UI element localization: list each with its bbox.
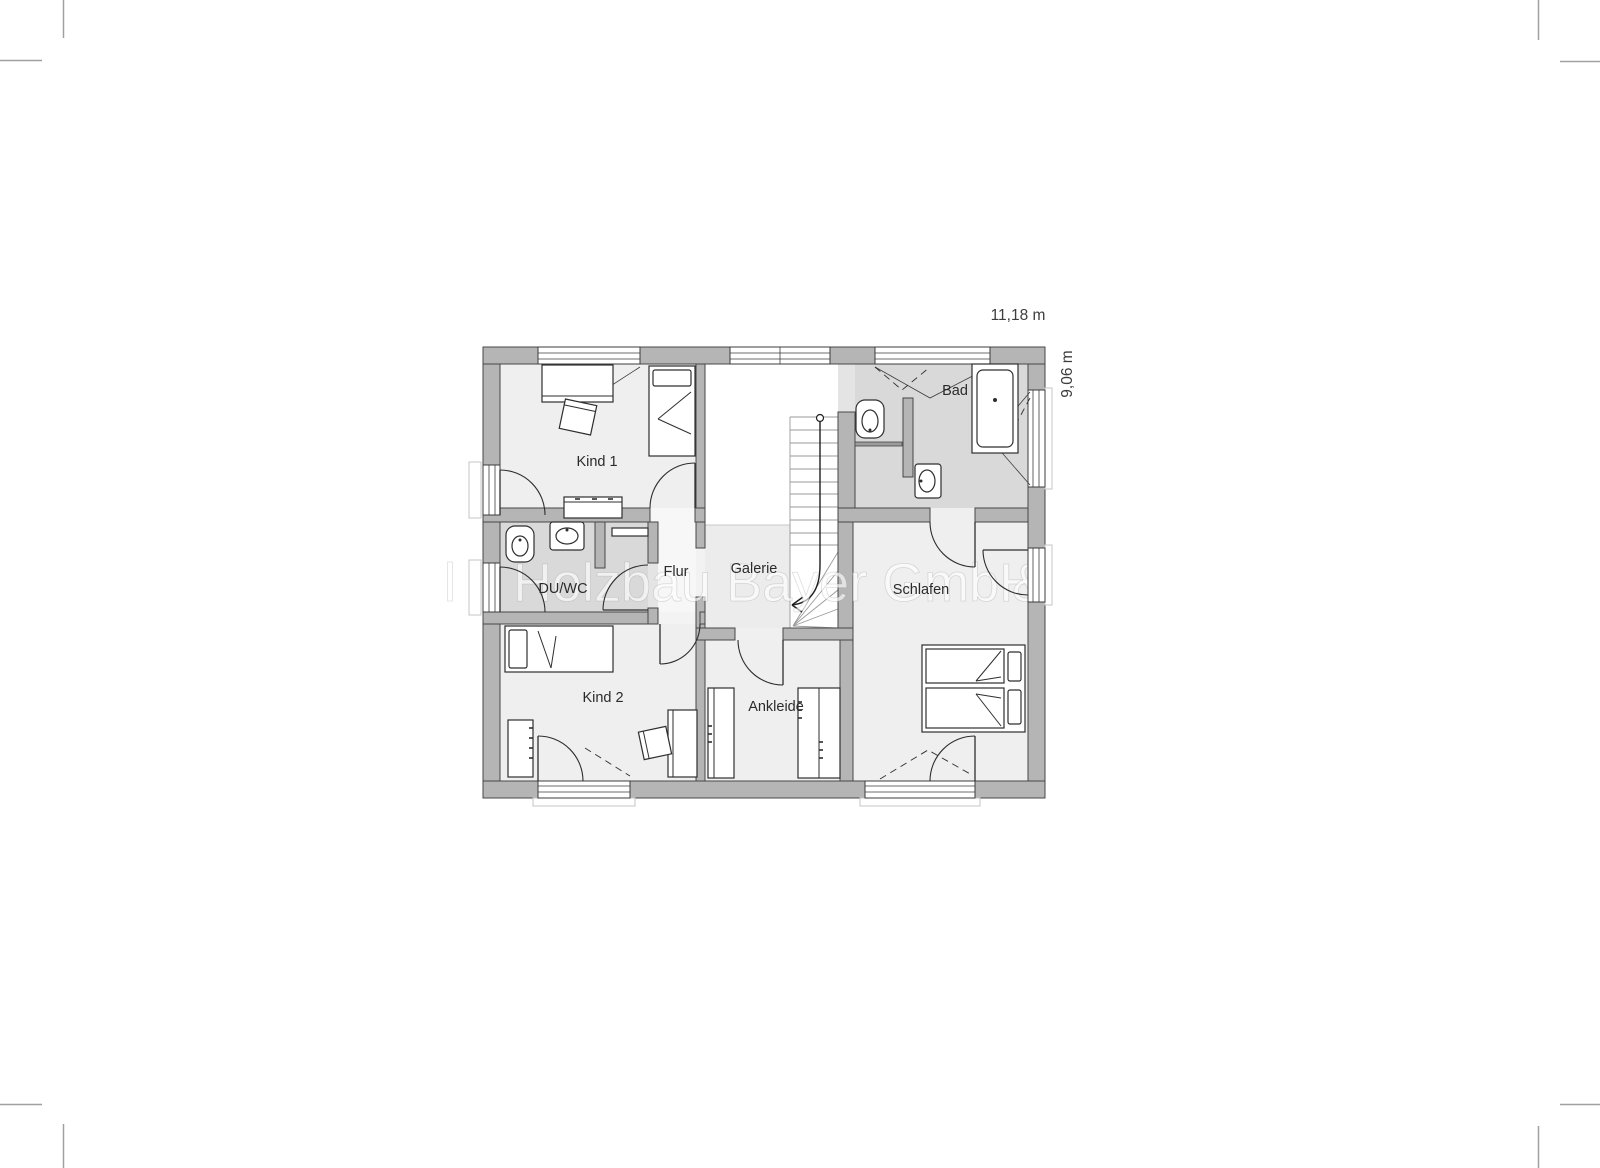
wall-bad-schlafen-2: [975, 508, 1028, 522]
room-label-galerie: Galerie: [731, 561, 778, 577]
wall-bottom-3: [975, 781, 1045, 798]
duwc-shelf: [612, 528, 648, 536]
kind1-door-opening: [650, 508, 696, 522]
kind1-sideboard: [564, 497, 622, 518]
ankleide-door-opening: [735, 628, 783, 640]
ankleide-wardrobe-right: [798, 688, 840, 778]
kind2-bed: [505, 626, 613, 672]
duwc-toilet: [506, 526, 534, 562]
room-label-kind2: Kind 2: [582, 690, 623, 706]
room-label-flur: Flur: [664, 564, 689, 580]
bad-bathtub: [972, 364, 1018, 453]
room-label-ankleide: Ankleide: [748, 699, 804, 715]
room-label-schlafen: Schlafen: [893, 582, 949, 598]
floor-plan: l Holzbau Bayer GmbH &: [0, 0, 1600, 1168]
dimension-width: 11,18 m: [991, 307, 1046, 324]
schlafen-double-bed: [922, 645, 1025, 732]
page: l Holzbau Bayer GmbH &: [0, 0, 1600, 1168]
wall-top-2: [640, 347, 730, 364]
kind2-desk: [668, 710, 697, 777]
bad-washbasin: [915, 464, 941, 498]
kind2-chair: [638, 726, 671, 759]
wall-kind1-stair: [696, 364, 705, 508]
room-label-duwc: DU/WC: [538, 581, 587, 597]
wall-kind1-duwc-2: [695, 508, 705, 522]
wall-top-1: [483, 347, 538, 364]
ankleide-wardrobe-left: [708, 688, 734, 778]
schlafen-door-opening: [930, 508, 975, 522]
wall-bottom-1: [483, 781, 538, 798]
room-label-kind1: Kind 1: [576, 454, 617, 470]
wall-galerie-ankleide-1: [696, 628, 735, 640]
wall-right-3: [1028, 602, 1045, 781]
wall-right-1: [1028, 364, 1045, 390]
wall-ankleide-schlafen: [840, 640, 853, 781]
window-stairwell-top: [730, 347, 830, 364]
wall-bottom-2: [630, 781, 865, 798]
wall-duwc-kind2-2: [700, 612, 705, 624]
wall-right-2: [1028, 487, 1045, 548]
duwc-washbasin: [550, 522, 584, 550]
wall-duwc-kind2-1: [483, 612, 658, 624]
wall-left-3: [483, 612, 500, 781]
kind1-desk: [542, 365, 613, 402]
dimension-height: 9,06 m: [1059, 350, 1076, 397]
wall-top-3: [830, 347, 875, 364]
bad-door-opening: [838, 364, 855, 412]
kind2-wardrobe: [508, 720, 533, 777]
kind1-bed: [649, 366, 695, 456]
kind2-door-opening: [658, 612, 700, 624]
wall-top-4: [990, 347, 1045, 364]
kind1-chair: [559, 399, 597, 435]
wall-bad-schlafen-1: [838, 508, 930, 522]
bad-toilet: [856, 400, 884, 438]
bad-towel-rail: [855, 442, 902, 446]
wall-galerie-ankleide-2: [783, 628, 853, 640]
watermark-fragment: l: [444, 553, 456, 613]
bad-partition: [903, 398, 913, 477]
wall-flur-galerie-1: [696, 522, 705, 548]
room-label-bad: Bad: [942, 383, 968, 399]
wall-stair-bad: [838, 412, 855, 508]
wall-left-1: [483, 364, 500, 465]
